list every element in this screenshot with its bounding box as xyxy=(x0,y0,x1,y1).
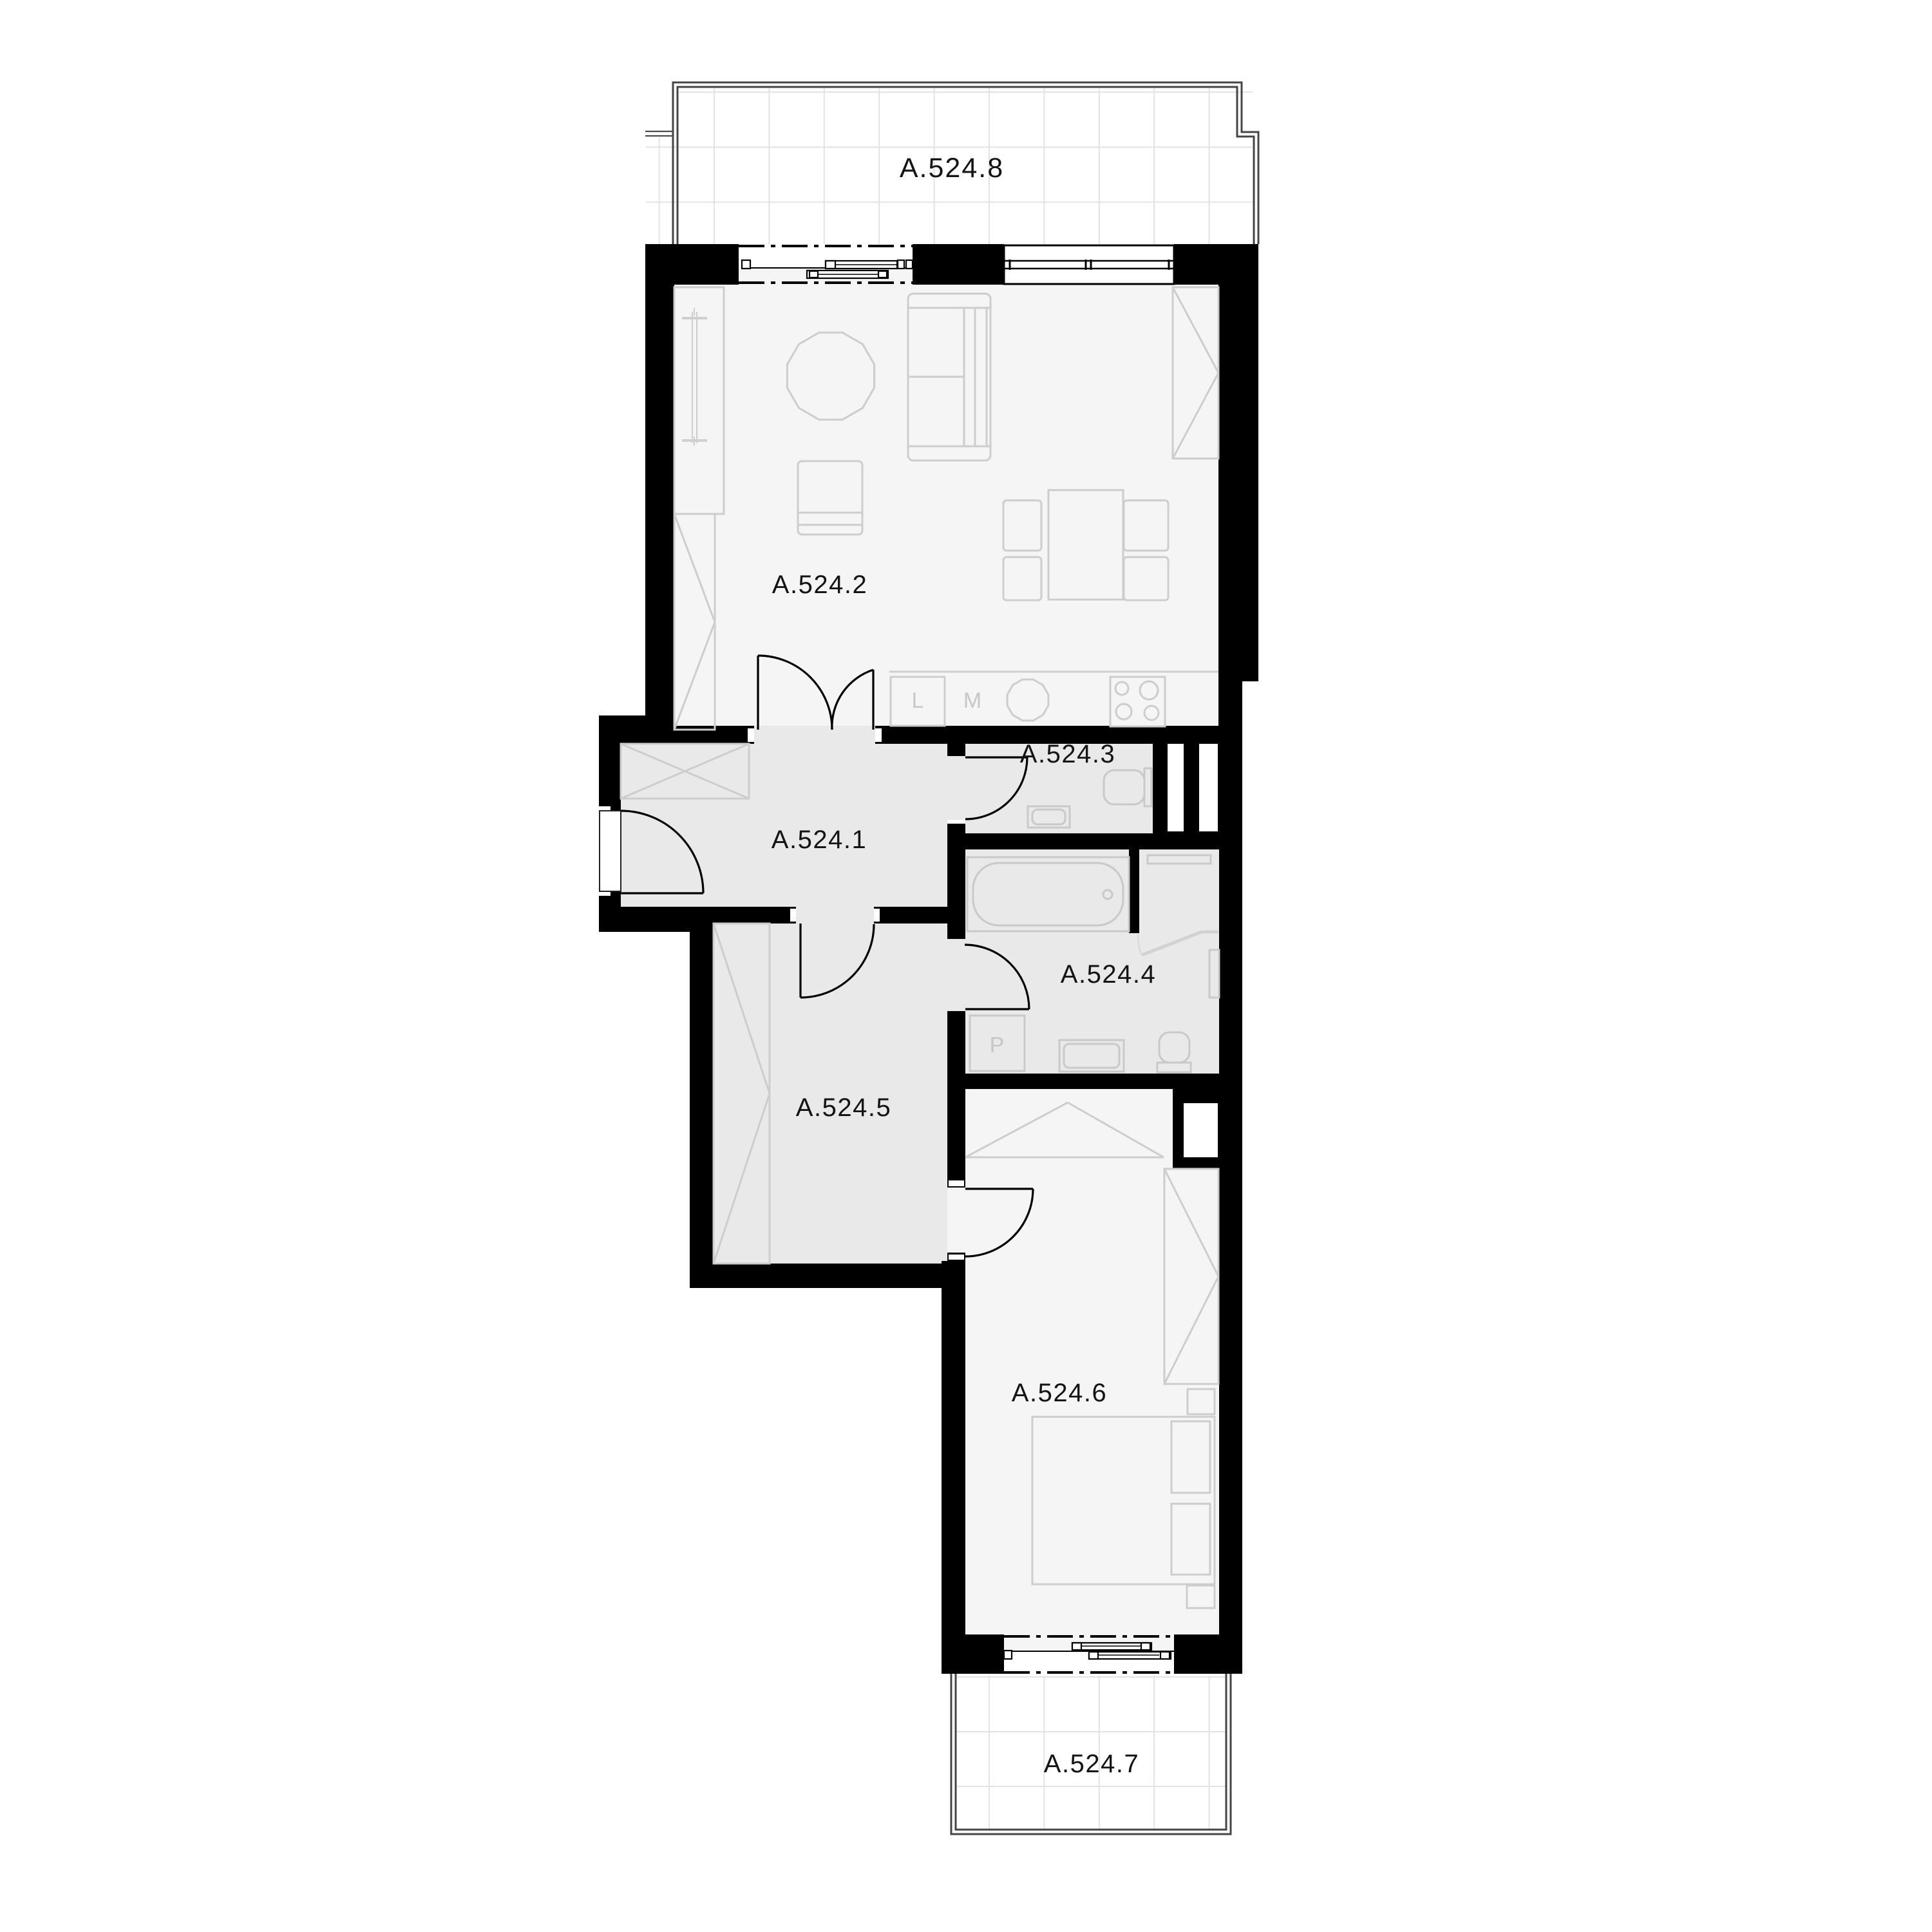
svg-text:A.524.3: A.524.3 xyxy=(1020,740,1115,768)
svg-text:L: L xyxy=(912,688,924,713)
svg-text:A.524.2: A.524.2 xyxy=(772,571,867,599)
svg-text:A.524.8: A.524.8 xyxy=(900,153,1004,184)
svg-text:A.524.5: A.524.5 xyxy=(796,1094,891,1122)
svg-text:M: M xyxy=(963,688,981,713)
svg-text:A.524.1: A.524.1 xyxy=(772,826,867,854)
svg-text:A.524.4: A.524.4 xyxy=(1061,960,1156,989)
svg-text:A.524.6: A.524.6 xyxy=(1012,1379,1107,1407)
svg-text:P: P xyxy=(990,1033,1005,1057)
svg-text:A.524.7: A.524.7 xyxy=(1044,1750,1139,1778)
